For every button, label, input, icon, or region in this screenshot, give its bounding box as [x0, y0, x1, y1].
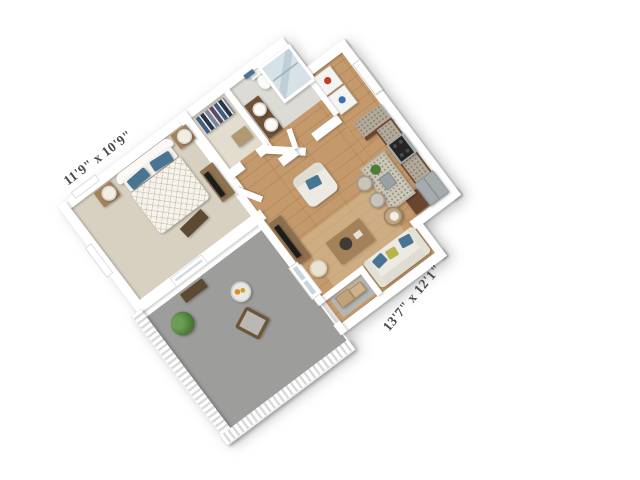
- coffee-table-books: [353, 230, 363, 240]
- floorplan-image: 11'9" x 10'9" 13'7" x 12'1": [0, 0, 640, 480]
- island-sink: [378, 171, 397, 190]
- table-lamp: [388, 210, 401, 223]
- washer-laundry: [323, 76, 333, 86]
- shower-door-line: [273, 62, 298, 82]
- fridge-door-line: [423, 178, 440, 199]
- floorplan-3d: 11'9" x 10'9" 13'7" x 12'1": [57, 7, 517, 466]
- patio-chair-cushion: [239, 310, 266, 335]
- dryer-laundry: [337, 95, 347, 105]
- coffee-table-tray: [337, 235, 355, 253]
- island-plant: [368, 162, 383, 177]
